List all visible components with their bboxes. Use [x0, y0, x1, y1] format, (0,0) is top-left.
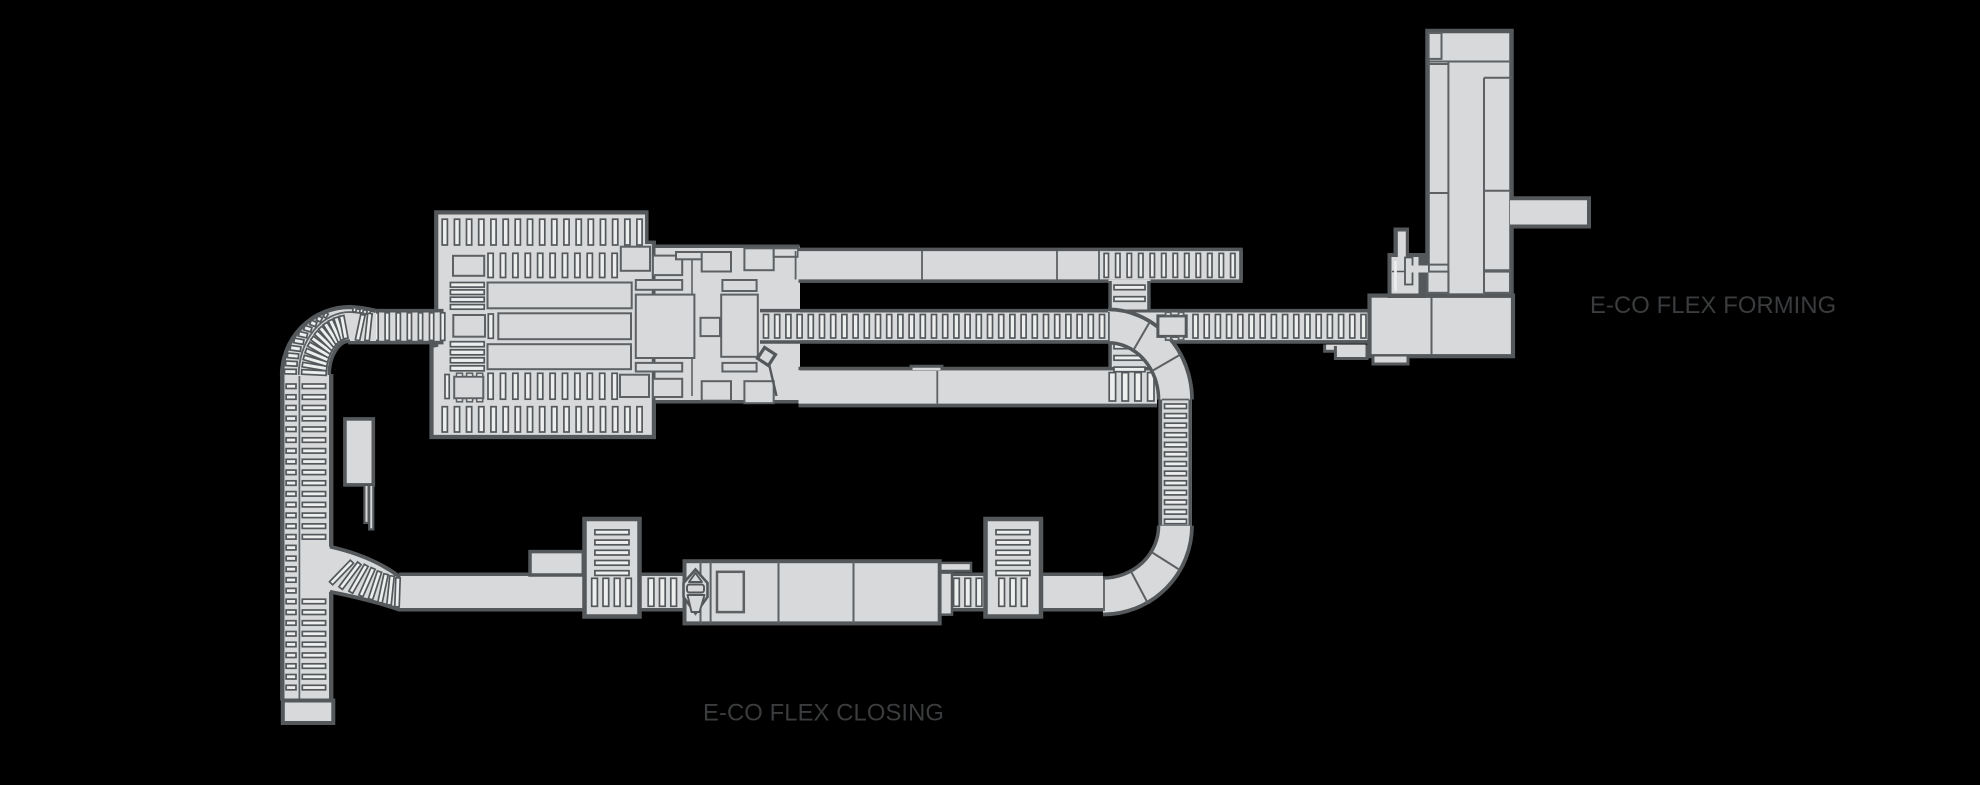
svg-text:E-CO FLEX CLOSING: E-CO FLEX CLOSING: [703, 700, 944, 727]
svg-text:E-CO FLEX FORMING: E-CO FLEX FORMING: [1590, 292, 1836, 319]
